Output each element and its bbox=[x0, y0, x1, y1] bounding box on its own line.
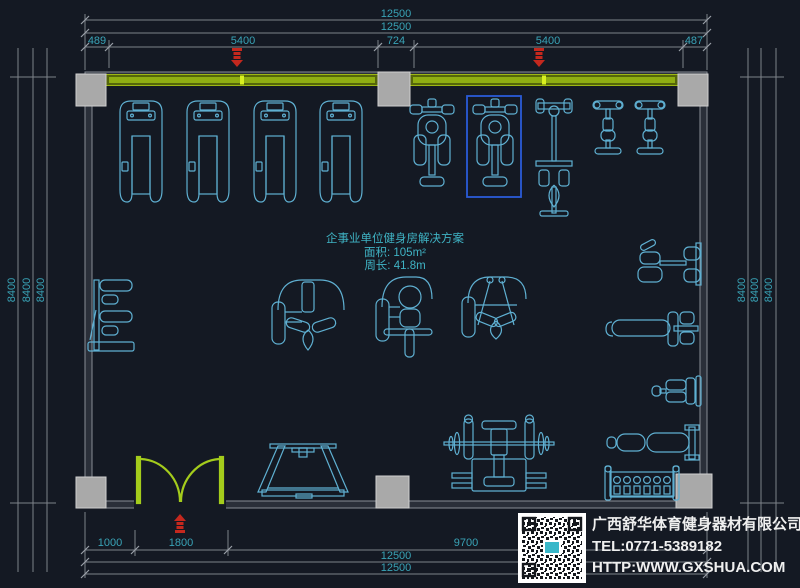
dim-top-seg: 489 bbox=[88, 35, 106, 47]
dim-bottom-seg: 1800 bbox=[169, 537, 193, 549]
dim-bottom-overall-1: 12500 bbox=[381, 550, 412, 562]
window-marker-icon bbox=[533, 48, 545, 67]
dimension-chain-right: 8400 8400 8400 bbox=[736, 48, 784, 572]
dimension-chain-top: 12500 12500 489 5400 724 5400 487 bbox=[81, 8, 711, 70]
door-marker-icon bbox=[174, 514, 186, 533]
dim-top-overall-1: 12500 bbox=[381, 8, 412, 20]
room-walls bbox=[85, 72, 707, 508]
dim-left: 8400 bbox=[35, 278, 47, 302]
dim-top-seg: 5400 bbox=[231, 35, 255, 47]
plan-area: 面积: 105m² bbox=[364, 246, 426, 259]
dimension-chain-left: 8400 8400 8400 bbox=[6, 48, 56, 572]
dim-left: 8400 bbox=[6, 278, 18, 302]
window-marker-icon bbox=[231, 48, 243, 67]
dim-top-seg: 724 bbox=[387, 35, 405, 47]
dim-bottom-seg: 1000 bbox=[98, 537, 122, 549]
dim-right: 8400 bbox=[763, 278, 775, 302]
dim-right: 8400 bbox=[736, 278, 748, 302]
plan-title: 企事业单位健身房解决方案 bbox=[326, 231, 464, 245]
dim-right: 8400 bbox=[749, 278, 761, 302]
dim-top-seg: 5400 bbox=[536, 35, 560, 47]
dim-bottom-overall-2: 12500 bbox=[381, 562, 412, 574]
dim-bottom-seg: 9700 bbox=[454, 537, 478, 549]
dim-top-overall-2: 12500 bbox=[381, 21, 412, 33]
company-name: 广西舒华体育健身器材有限公司 bbox=[592, 515, 800, 533]
company-website: HTTP:WWW.GXSHUA.COM bbox=[592, 559, 785, 576]
plan-perimeter: 周长: 41.8m bbox=[364, 259, 425, 272]
qr-center-logo bbox=[545, 542, 559, 553]
dim-left: 8400 bbox=[21, 278, 33, 302]
cad-floorplan-canvas[interactable]: 12500 12500 489 5400 724 5400 487 1000 1… bbox=[0, 0, 800, 588]
dim-top-seg: 487 bbox=[685, 35, 703, 47]
company-tel: TEL:0771-5389182 bbox=[592, 538, 722, 555]
title-block: 广西舒华体育健身器材有限公司 TEL:0771-5389182 HTTP:WWW… bbox=[518, 513, 800, 583]
